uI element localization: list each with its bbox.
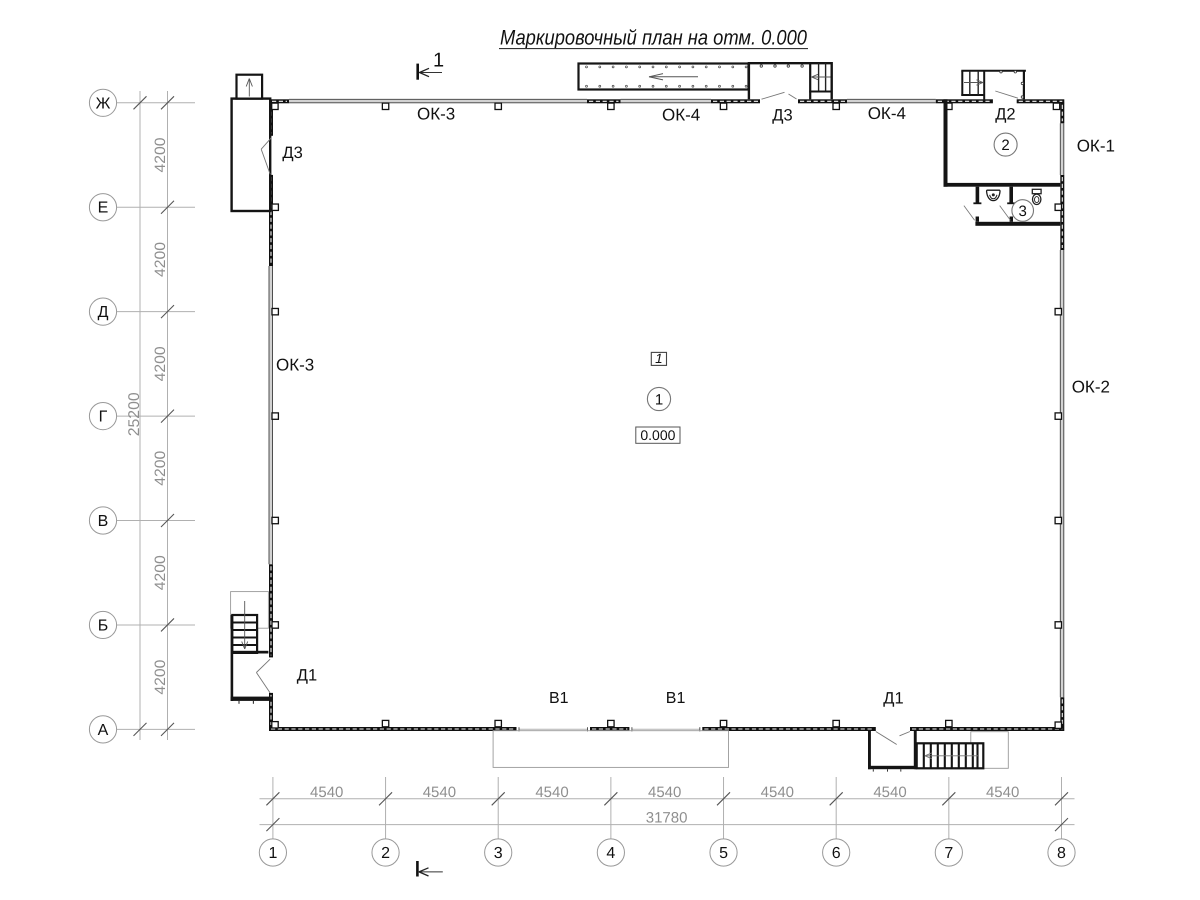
svg-text:Г: Г bbox=[99, 409, 108, 426]
svg-text:25200: 25200 bbox=[126, 392, 143, 436]
svg-text:4540: 4540 bbox=[648, 784, 681, 801]
svg-text:ОК-2: ОК-2 bbox=[1072, 378, 1110, 397]
svg-text:6: 6 bbox=[832, 845, 841, 862]
svg-text:4200: 4200 bbox=[152, 451, 169, 486]
svg-text:1: 1 bbox=[655, 391, 663, 408]
svg-text:4540: 4540 bbox=[423, 784, 456, 801]
svg-text:5: 5 bbox=[719, 845, 728, 862]
svg-text:ОК-3: ОК-3 bbox=[417, 105, 455, 124]
svg-text:2: 2 bbox=[381, 845, 390, 862]
svg-text:В: В bbox=[98, 513, 109, 530]
svg-text:В1: В1 bbox=[549, 690, 569, 707]
svg-text:ОК-3: ОК-3 bbox=[276, 355, 314, 374]
svg-text:Е: Е bbox=[98, 200, 109, 217]
svg-text:ОК-1: ОК-1 bbox=[1077, 137, 1115, 156]
svg-text:ОК-4: ОК-4 bbox=[868, 104, 906, 123]
svg-text:4200: 4200 bbox=[152, 242, 169, 277]
svg-text:31780: 31780 bbox=[646, 810, 688, 827]
svg-text:4200: 4200 bbox=[152, 138, 169, 173]
svg-text:4540: 4540 bbox=[310, 784, 343, 801]
svg-text:Ж: Ж bbox=[96, 95, 111, 112]
svg-text:4: 4 bbox=[606, 845, 615, 862]
svg-text:1: 1 bbox=[268, 845, 277, 862]
svg-text:7: 7 bbox=[944, 845, 953, 862]
svg-text:4540: 4540 bbox=[535, 784, 568, 801]
svg-text:4540: 4540 bbox=[986, 784, 1019, 801]
svg-text:1: 1 bbox=[655, 351, 663, 366]
svg-text:3: 3 bbox=[1019, 203, 1027, 220]
svg-text:4540: 4540 bbox=[761, 784, 794, 801]
svg-text:Д3: Д3 bbox=[772, 106, 792, 124]
svg-text:А: А bbox=[98, 722, 109, 739]
svg-text:Д3: Д3 bbox=[282, 144, 302, 162]
svg-text:Д2: Д2 bbox=[995, 106, 1015, 124]
svg-text:ОК-4: ОК-4 bbox=[662, 105, 700, 124]
svg-text:В1: В1 bbox=[666, 690, 686, 707]
svg-text:Д1: Д1 bbox=[297, 667, 317, 685]
svg-text:4200: 4200 bbox=[152, 660, 169, 695]
svg-text:Д1: Д1 bbox=[883, 690, 903, 708]
svg-text:Д: Д bbox=[98, 304, 109, 321]
svg-text:3: 3 bbox=[494, 845, 503, 862]
svg-text:0.000: 0.000 bbox=[640, 427, 675, 443]
svg-text:2: 2 bbox=[1001, 137, 1009, 154]
svg-text:8: 8 bbox=[1057, 845, 1066, 862]
svg-text:Б: Б bbox=[98, 617, 109, 634]
svg-text:4540: 4540 bbox=[873, 784, 906, 801]
svg-text:4200: 4200 bbox=[152, 555, 169, 590]
svg-text:1: 1 bbox=[433, 50, 444, 72]
svg-text:4200: 4200 bbox=[152, 346, 169, 381]
svg-text:Маркировочный план на отм. 0.0: Маркировочный план на отм. 0.000 bbox=[500, 27, 807, 50]
